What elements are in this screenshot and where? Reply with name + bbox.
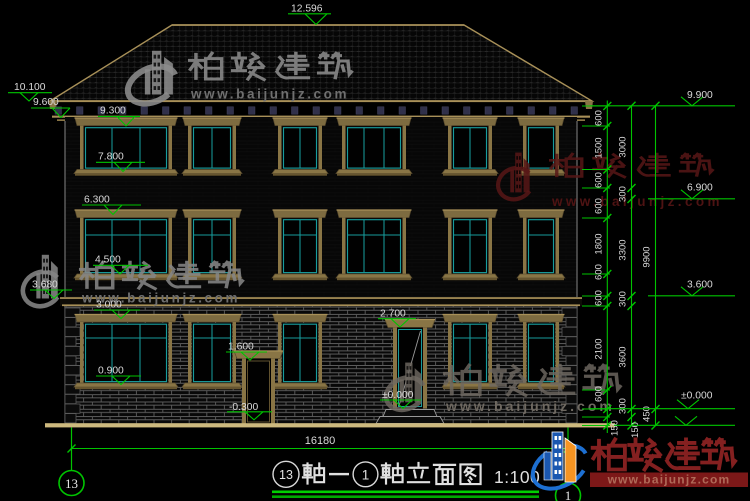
svg-text:6.900: 6.900 bbox=[687, 183, 713, 194]
svg-text:16180: 16180 bbox=[305, 435, 336, 447]
svg-text:3.680: 3.680 bbox=[32, 280, 58, 291]
svg-text:600: 600 bbox=[594, 290, 605, 306]
svg-text:4.500: 4.500 bbox=[95, 255, 121, 266]
svg-text:9.900: 9.900 bbox=[687, 90, 713, 101]
svg-text:1: 1 bbox=[362, 468, 370, 483]
svg-text:www.baijunjz.com: www.baijunjz.com bbox=[445, 398, 615, 414]
svg-text:600: 600 bbox=[594, 110, 605, 126]
svg-text:1500: 1500 bbox=[594, 137, 605, 158]
svg-text:www.baijunjz.com: www.baijunjz.com bbox=[607, 473, 731, 487]
svg-text:300: 300 bbox=[618, 291, 629, 307]
svg-text:9900: 9900 bbox=[642, 246, 653, 267]
svg-text:±0.000: ±0.000 bbox=[681, 391, 713, 402]
svg-text:1800: 1800 bbox=[594, 233, 605, 254]
svg-text:±0.000: ±0.000 bbox=[382, 390, 414, 401]
svg-text:600: 600 bbox=[594, 172, 605, 188]
svg-text:3600: 3600 bbox=[618, 346, 629, 367]
svg-text:12.596: 12.596 bbox=[291, 4, 323, 15]
svg-text:6.300: 6.300 bbox=[84, 195, 110, 206]
svg-text:13: 13 bbox=[65, 476, 78, 491]
svg-text:150: 150 bbox=[630, 422, 641, 438]
svg-text:300: 300 bbox=[618, 186, 629, 202]
svg-text:600: 600 bbox=[594, 264, 605, 280]
svg-text:9.600: 9.600 bbox=[33, 97, 59, 108]
svg-text:3000: 3000 bbox=[618, 136, 629, 157]
svg-text:150: 150 bbox=[610, 420, 621, 436]
svg-text:www.baijunjz.com: www.baijunjz.com bbox=[551, 194, 723, 209]
svg-text:600: 600 bbox=[594, 198, 605, 214]
svg-text:7.800: 7.800 bbox=[98, 152, 124, 163]
svg-text:600: 600 bbox=[594, 386, 605, 402]
svg-text:0.900: 0.900 bbox=[98, 366, 124, 377]
svg-text:2100: 2100 bbox=[594, 338, 605, 359]
svg-text:2.700: 2.700 bbox=[380, 309, 406, 320]
svg-text:10.100: 10.100 bbox=[14, 82, 46, 93]
svg-text:-0.300: -0.300 bbox=[229, 402, 258, 413]
svg-text:3300: 3300 bbox=[618, 239, 629, 260]
svg-text:1: 1 bbox=[565, 488, 572, 501]
svg-text:3.000: 3.000 bbox=[96, 300, 122, 311]
svg-text:13: 13 bbox=[279, 468, 293, 482]
svg-text:9.300: 9.300 bbox=[100, 106, 126, 117]
svg-text:300: 300 bbox=[618, 398, 629, 414]
svg-text:1.600: 1.600 bbox=[228, 342, 254, 353]
svg-text:3.600: 3.600 bbox=[687, 280, 713, 291]
svg-text:www.baijunjz.com: www.baijunjz.com bbox=[190, 87, 349, 102]
